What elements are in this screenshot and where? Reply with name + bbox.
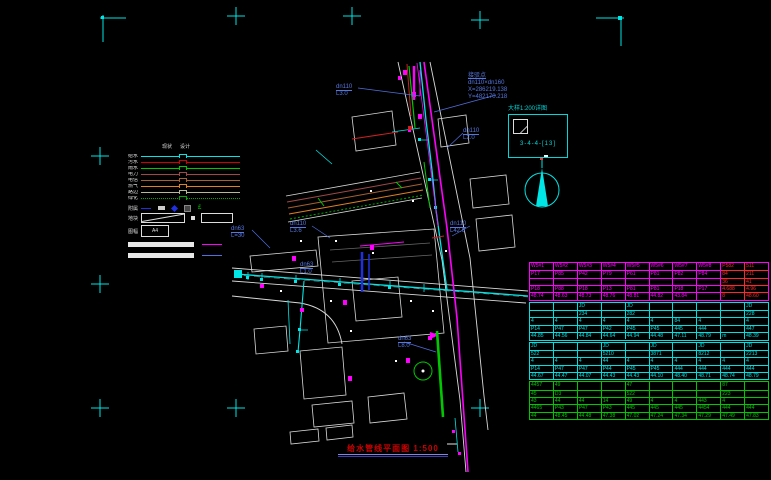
legend-item-label: 绿化 — [128, 196, 141, 201]
drawing-title: 给水管线平面图 1:500 — [338, 444, 448, 453]
table-cell: 44 — [578, 397, 602, 404]
table-cell — [602, 303, 626, 310]
table-row: JDJDJD — [530, 303, 768, 310]
table-cell: P47 — [578, 404, 602, 411]
table-group: 445749478745D352222343444414494444344465… — [529, 381, 769, 420]
table-cell: P42 — [578, 270, 602, 277]
legend-sheet-label: 图幅 — [128, 228, 141, 235]
table-cell: JD — [530, 343, 554, 350]
title-underline — [338, 454, 448, 455]
table-cell — [745, 390, 768, 397]
table-cell — [673, 278, 697, 285]
title-underline-2 — [338, 456, 448, 457]
pipe-size-label: dn110L3.0 — [336, 84, 352, 97]
road-bar — [128, 242, 194, 247]
table-cell: P582 — [721, 263, 745, 270]
table-row: 4344441449444434 — [530, 397, 768, 404]
legend-road-bar-row-1 — [128, 240, 240, 249]
dash-symbol — [141, 208, 151, 209]
table-cell: 48.76 — [602, 292, 626, 299]
table-cell — [697, 303, 721, 310]
pipe-diameter: dn110 — [463, 128, 479, 135]
table-cell: 228 — [745, 310, 768, 317]
table-cell: P47 — [578, 325, 602, 332]
legend-block-label: 地块 — [128, 215, 141, 222]
table-cell: 48.45 — [554, 412, 578, 419]
pipe-diameter: dn110 — [336, 84, 352, 91]
legend-line-marker — [179, 172, 187, 176]
table-row: 5225210387182122213 — [530, 350, 768, 357]
table-cell: 4 — [578, 357, 602, 364]
table-cell: 445 — [626, 404, 650, 411]
table-cell: P47 — [554, 325, 578, 332]
legend-line-marker — [179, 160, 187, 164]
box-symbol — [158, 206, 165, 210]
table-cell — [602, 310, 626, 317]
pipe-length: L42.6 — [450, 228, 466, 234]
sheet-size-box: A4 — [141, 225, 169, 237]
table-cell: JD — [745, 343, 768, 350]
table-cell: 49 — [626, 397, 650, 404]
pipe-size-label: dn110L2.0 — [463, 128, 479, 141]
table-row: 44.6744.4744.0744.4344.4344.1048.4048.71… — [530, 372, 768, 379]
table-row: 45D3522223 — [530, 390, 768, 397]
table-cell: 49 — [554, 382, 578, 389]
table-cell: 511 — [745, 263, 768, 270]
blue-line-sample — [202, 255, 222, 256]
table-cell: 45 — [530, 390, 554, 397]
table-cell: 445 — [673, 325, 697, 332]
pipe-diameter: dn63 — [300, 262, 313, 269]
table-cell — [578, 343, 602, 350]
table-row: 3641 — [530, 278, 768, 285]
table-cell: P82 — [673, 270, 697, 277]
table-cell: 44 — [530, 412, 554, 419]
callout-title: 接驳点 — [468, 73, 507, 80]
table-cell: 4 — [602, 317, 626, 324]
table-cell — [650, 278, 674, 285]
table-cell: 47.83 — [745, 412, 768, 419]
table-cell: 4 — [745, 317, 768, 324]
table-cell: 4 — [673, 397, 697, 404]
legend-item-label: 污水 — [128, 160, 141, 165]
table-cell — [530, 278, 554, 285]
table-cell: W5#7 — [673, 263, 697, 270]
table-cell — [554, 350, 578, 357]
table-cell: 234 — [578, 310, 602, 317]
legend-item-label: 给水 — [128, 154, 141, 159]
table-cell: 444 — [745, 365, 768, 372]
table-cell: P14 — [530, 325, 554, 332]
table-cell: 4 — [697, 317, 721, 324]
table-row: 44444444444 — [530, 357, 768, 364]
table-cell — [554, 343, 578, 350]
table-row: W5#1W5#2W5#3W5#4W5#5W5#6W5#7W5#8P582511 — [530, 263, 768, 270]
legend-line-sample — [141, 174, 240, 175]
table-cell: P44 — [602, 365, 626, 372]
table-cell: W5#5 — [626, 263, 650, 270]
elevation-data-table: W5#1W5#2W5#3W5#4W5#5W5#6W5#7W5#8P582511P… — [529, 262, 769, 420]
table-cell: 44.10 — [650, 372, 674, 379]
table-cell: 4 — [673, 357, 697, 364]
legend-line-sample — [141, 186, 240, 187]
legend-symbol-label: 附属 — [128, 205, 141, 212]
table-cell: 44.43 — [626, 372, 650, 379]
table-cell — [673, 303, 697, 310]
table-row: P18P88P18P13P81P81P18P174.6884.96 — [530, 285, 768, 292]
table-cell — [554, 303, 578, 310]
table-cell: P18 — [578, 285, 602, 292]
table-cell — [554, 310, 578, 317]
table-cell — [673, 343, 697, 350]
table-cell: 4 — [650, 357, 674, 364]
table-cell: 444 — [697, 365, 721, 372]
table-cell — [626, 343, 650, 350]
table-cell: 445 — [650, 404, 674, 411]
table-cell: 4454 — [697, 404, 721, 411]
table-cell: 2213 — [745, 350, 768, 357]
table-cell — [650, 382, 674, 389]
pipe-diameter: dn63 — [398, 336, 411, 343]
diamond-symbol — [171, 204, 178, 211]
table-cell — [602, 390, 626, 397]
table-cell: 47 — [626, 382, 650, 389]
legend: 现状 设计 给水污水雨水电力电信燃气路边绿化 附属 £ 地块 图幅 A4 — [128, 144, 240, 260]
table-cell: 48.60 — [745, 292, 768, 299]
table-cell: 47.34 — [673, 412, 697, 419]
table-cell — [626, 350, 650, 357]
table-cell: 447 — [745, 325, 768, 332]
table-cell: 44.94 — [626, 332, 650, 339]
small-square-symbol — [191, 216, 195, 220]
table-row: 4465P43P47P434454454454454444444 — [530, 404, 768, 411]
table-cell: 44.07 — [578, 372, 602, 379]
table-cell: P88 — [554, 285, 578, 292]
legend-items: 给水污水雨水电力电信燃气路边绿化 — [128, 153, 240, 201]
legend-headers: 现状 设计 — [128, 144, 240, 153]
table-cell — [721, 310, 745, 317]
legend-line-marker — [179, 178, 187, 182]
legend-symbol-row: 附属 £ — [128, 204, 240, 212]
table-cell — [721, 325, 745, 332]
table-cell: 47.38 — [602, 412, 626, 419]
table-cell: P61 — [626, 270, 650, 277]
hatched-square-icon — [513, 119, 528, 134]
detail-caption: 大样1:200详图 — [508, 106, 574, 113]
table-cell: P17 — [530, 270, 554, 277]
detail-reference: 大样1:200详图 3-4-4-[13] — [508, 106, 574, 158]
table-cell — [673, 310, 697, 317]
table-cell: P45 — [650, 365, 674, 372]
table-cell: P43 — [602, 404, 626, 411]
table-cell: 4 — [554, 357, 578, 364]
table-cell: 522 — [626, 390, 650, 397]
pipe-diameter: dn110 — [450, 221, 466, 228]
table-cell — [697, 292, 721, 299]
table-cell — [650, 303, 674, 310]
table-cell: D3 — [554, 390, 578, 397]
table-cell: 48.71 — [697, 372, 721, 379]
legend-item-label: 燃气 — [128, 184, 141, 189]
legend-line-marker — [179, 166, 187, 170]
pipe-size-label: dn63L=30 — [231, 226, 245, 239]
table-cell: 223 — [721, 390, 745, 397]
legend-block-row: 地块 — [128, 212, 240, 224]
table-cell — [697, 382, 721, 389]
table-cell: JD — [578, 303, 602, 310]
table-cell — [697, 390, 721, 397]
table-cell: 4 — [745, 357, 768, 364]
detail-box: 3-4-4-[13] — [508, 114, 568, 158]
table-cell: P79 — [602, 270, 626, 277]
legend-sheet-row: 图幅 A4 — [128, 224, 240, 238]
table-cell: 444 — [673, 365, 697, 372]
table-cell: 44.64 — [602, 332, 626, 339]
pipe-diameter: dn63 — [231, 226, 244, 233]
table-cell: 444 — [697, 325, 721, 332]
utility-band-lines — [287, 178, 424, 219]
table-cell: 48.81 — [626, 292, 650, 299]
legend-line-sample — [141, 198, 240, 199]
table-cell — [602, 278, 626, 285]
table-row: 4457494787 — [530, 382, 768, 389]
table-cell: 48.79 — [745, 372, 768, 379]
legend-line-sample — [141, 180, 240, 181]
table-cell: 211 — [745, 270, 768, 277]
table-cell — [697, 278, 721, 285]
cad-plan-screenshot: 现状 设计 给水污水雨水电力电信燃气路边绿化 附属 £ 地块 图幅 A4 — [0, 0, 771, 480]
table-cell — [745, 397, 768, 404]
table-cell: 41 — [745, 278, 768, 285]
legend-line-marker — [179, 184, 187, 188]
table-group: JDJDJDJDJD522521038718212221344444444444… — [529, 342, 769, 381]
table-cell: P81 — [650, 285, 674, 292]
callout-y-coordinate: Y=482170.218 — [468, 94, 507, 101]
table-cell: JD — [745, 303, 768, 310]
table-cell: 44.84 — [578, 332, 602, 339]
table-cell: 44.48 — [578, 412, 602, 419]
detail-code: 3-4-4-[13] — [509, 141, 567, 147]
table-cell: 4 — [650, 317, 674, 324]
table-cell: W5#4 — [602, 263, 626, 270]
table-cell — [530, 310, 554, 317]
legend-item: 绿化 — [128, 195, 240, 201]
table-row: P14P47P47P42P45P45445444447 — [530, 325, 768, 332]
table-cell: 87 — [721, 382, 745, 389]
table-cell — [602, 382, 626, 389]
table-cell: 3871 — [650, 350, 674, 357]
table-cell: P17 — [697, 285, 721, 292]
table-cell — [745, 382, 768, 389]
table-cell: 48.79 — [697, 332, 721, 339]
table-cell: 44.56 — [554, 332, 578, 339]
legend-line-marker — [179, 196, 187, 200]
table-cell — [626, 278, 650, 285]
table-cell — [578, 278, 602, 285]
table-row: JDJDJDJDJD — [530, 343, 768, 350]
table-cell: 44 — [602, 357, 626, 364]
table-cell: 4.96 — [745, 285, 768, 292]
road-bar — [128, 253, 194, 258]
table-cell: 44.85 — [530, 332, 554, 339]
table-cell: 48.63 — [554, 292, 578, 299]
magenta-pipeline — [260, 62, 468, 472]
pipe-length: L8.0 — [398, 343, 411, 349]
legend-line-sample — [141, 162, 240, 163]
table-cell: 4 — [530, 357, 554, 364]
table-row: 4444448444 — [530, 317, 768, 324]
table-cell: 84 — [673, 317, 697, 324]
table-cell: m — [721, 332, 745, 339]
table-cell: 14 — [602, 397, 626, 404]
table-cell: 4 — [530, 317, 554, 324]
table-cell: 5210 — [602, 350, 626, 357]
legend-line-sample — [141, 192, 240, 193]
table-cell: 48.73 — [578, 292, 602, 299]
table-cell: 43 — [530, 397, 554, 404]
parallelogram-symbol — [141, 213, 185, 223]
table-cell: P81 — [650, 270, 674, 277]
table-cell: 4 — [697, 357, 721, 364]
table-cell: 84 — [721, 270, 745, 277]
table-cell: JD — [650, 343, 674, 350]
table-cell: P45 — [626, 365, 650, 372]
road-edges — [232, 62, 528, 472]
legend-line-sample — [141, 156, 240, 157]
table-cell: 4465 — [530, 404, 554, 411]
table-cell: 445 — [673, 404, 697, 411]
pipe-size-label: dn63L1.0 — [300, 262, 313, 275]
table-group: JDJDJD2342822284444448444P14P47P47P42P45… — [529, 302, 769, 341]
table-cell: P47 — [578, 365, 602, 372]
table-cell: 282 — [626, 310, 650, 317]
table-cell: W5#2 — [554, 263, 578, 270]
table-cell: P18 — [530, 285, 554, 292]
table-cell — [578, 350, 602, 357]
table-row: 4448.4544.4847.3847.0247.2447.3447.2947.… — [530, 412, 768, 419]
table-cell: 44 — [554, 397, 578, 404]
valve-glyph: £ — [198, 205, 201, 211]
table-row: 48.7448.6348.7348.7648.8144.8243.84848.6… — [530, 292, 768, 299]
pipe-size-label: dn110L3.6 — [290, 221, 306, 234]
table-cell — [650, 310, 674, 317]
table-cell: P18 — [673, 285, 697, 292]
table-cell — [650, 390, 674, 397]
table-cell: 48.39 — [745, 332, 768, 339]
table-cell: 4.688 — [721, 285, 745, 292]
table-cell: 47.49 — [721, 412, 745, 419]
table-cell: 48.74 — [721, 372, 745, 379]
table-cell: W5#6 — [650, 263, 674, 270]
table-row: 44.8544.5644.8444.6444.9444.4847.1148.79… — [530, 332, 768, 339]
table-cell: P84 — [697, 270, 721, 277]
table-row: P17P85P42P79P61P81P82P8484211 — [530, 270, 768, 277]
table-cell: 443 — [697, 397, 721, 404]
pipe-size-label: dn63L8.0 — [398, 336, 411, 349]
pipe-length: L3.6 — [290, 228, 306, 234]
table-cell: W5#8 — [697, 263, 721, 270]
drawing-title-block: 给水管线平面图 1:500 — [338, 444, 448, 457]
table-cell — [697, 310, 721, 317]
callout-pipe-size: dn110×dn160 — [468, 80, 507, 87]
legend-item-label: 雨水 — [128, 166, 141, 171]
table-cell: 4 — [554, 317, 578, 324]
legend-header-design: 设计 — [180, 144, 190, 150]
blue-cable-marks — [362, 252, 369, 292]
red-line-sample — [202, 244, 222, 245]
table-cell: 36 — [721, 278, 745, 285]
table-cell: 48.74 — [530, 292, 554, 299]
table-cell: P81 — [626, 285, 650, 292]
table-cell: JD — [626, 303, 650, 310]
legend-item-label: 电信 — [128, 178, 141, 183]
pipe-diameter: dn110 — [290, 221, 306, 228]
square-symbol — [184, 205, 191, 212]
table-cell: P43 — [554, 404, 578, 411]
connection-point-callout: 接驳点 dn110×dn160 X=286219.138 Y=482170.21… — [468, 73, 507, 101]
table-cell: P45 — [650, 325, 674, 332]
table-cell — [721, 303, 745, 310]
rectangle-symbol — [201, 213, 233, 223]
table-cell: P14 — [530, 365, 554, 372]
table-row: P14P47P47P44P45P45444444444444 — [530, 365, 768, 372]
table-cell: 44.48 — [650, 332, 674, 339]
table-cell: 47.29 — [697, 412, 721, 419]
table-cell — [578, 382, 602, 389]
legend-line-sample — [141, 168, 240, 169]
table-cell: 444 — [721, 404, 745, 411]
table-cell: 44.67 — [530, 372, 554, 379]
table-cell: 4 — [626, 357, 650, 364]
table-cell — [673, 350, 697, 357]
table-cell: 47.02 — [626, 412, 650, 419]
north-arrow — [525, 155, 559, 207]
table-cell: 4 — [650, 397, 674, 404]
table-cell — [673, 390, 697, 397]
table-cell: 8212 — [697, 350, 721, 357]
table-cell: 522 — [530, 350, 554, 357]
table-cell — [721, 317, 745, 324]
legend-road-bar-row-2 — [128, 251, 240, 260]
table-cell — [721, 343, 745, 350]
legend-item-label: 电力 — [128, 172, 141, 177]
table-cell: 4 — [721, 397, 745, 404]
table-cell: 47.11 — [673, 332, 697, 339]
table-cell: 4457 — [530, 382, 554, 389]
table-cell — [554, 278, 578, 285]
table-row: 234282228 — [530, 310, 768, 317]
table-group: W5#1W5#2W5#3W5#4W5#5W5#6W5#7W5#8P582511P… — [529, 262, 769, 301]
table-cell: 44.47 — [554, 372, 578, 379]
table-cell: JD — [602, 343, 626, 350]
legend-line-marker — [179, 190, 187, 194]
legend-item-label: 路边 — [128, 190, 141, 195]
table-cell: W5#3 — [578, 263, 602, 270]
table-cell: 4 — [578, 317, 602, 324]
table-cell: P42 — [602, 325, 626, 332]
table-cell: 444 — [745, 404, 768, 411]
survey-points — [280, 190, 447, 362]
table-cell — [530, 303, 554, 310]
table-cell: JD — [697, 343, 721, 350]
pipe-length: L=30 — [231, 233, 245, 239]
table-cell: 48.40 — [673, 372, 697, 379]
table-cell: 43.84 — [673, 292, 697, 299]
table-cell: 47.24 — [650, 412, 674, 419]
table-cell: 44.43 — [602, 372, 626, 379]
table-cell: 4 — [626, 317, 650, 324]
table-cell: 44.82 — [650, 292, 674, 299]
